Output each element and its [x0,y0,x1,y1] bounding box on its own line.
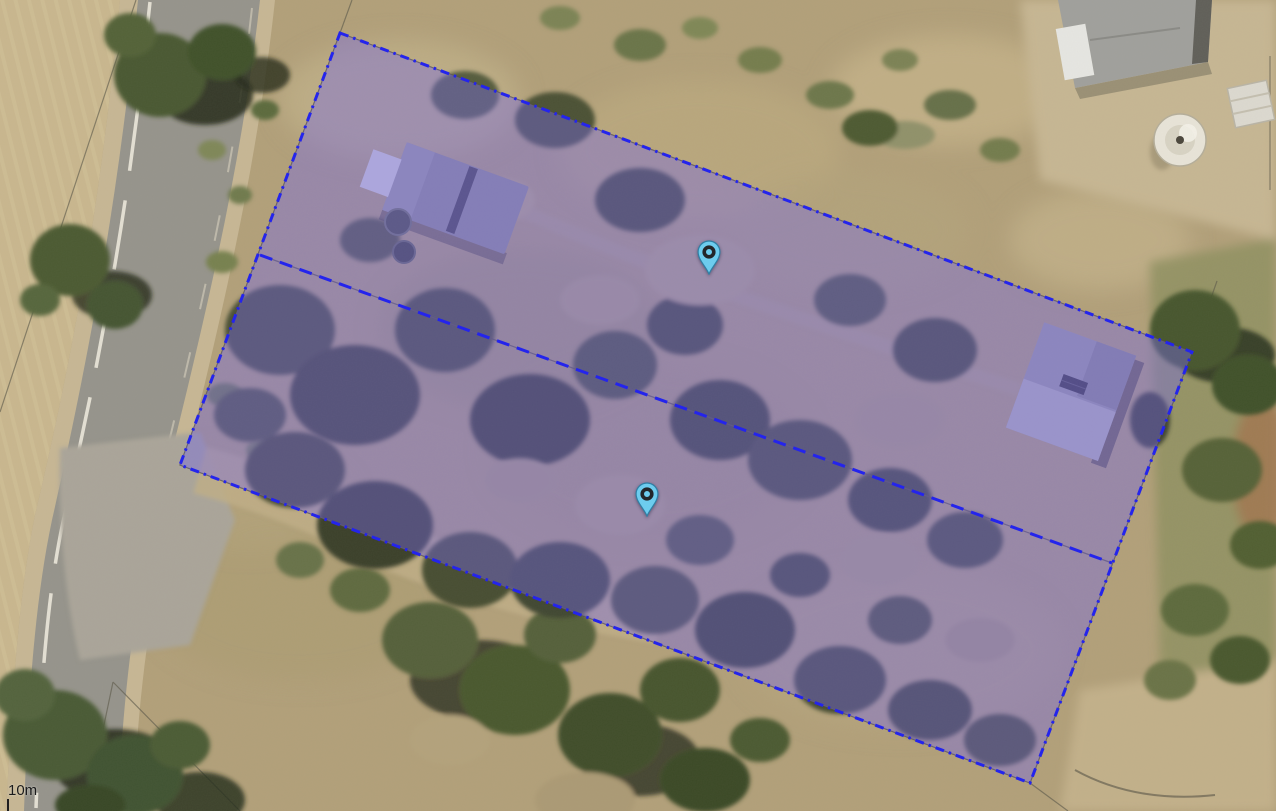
map-pin-marker-2[interactable] [635,482,660,517]
map-scale-control: 10m [7,783,103,811]
parcel-overlay-layer [0,0,1276,811]
scale-label: 10m [8,783,103,798]
map-pin-marker-1[interactable] [697,240,722,275]
map-viewport[interactable]: 10m [0,0,1276,811]
scale-bar [7,799,103,811]
